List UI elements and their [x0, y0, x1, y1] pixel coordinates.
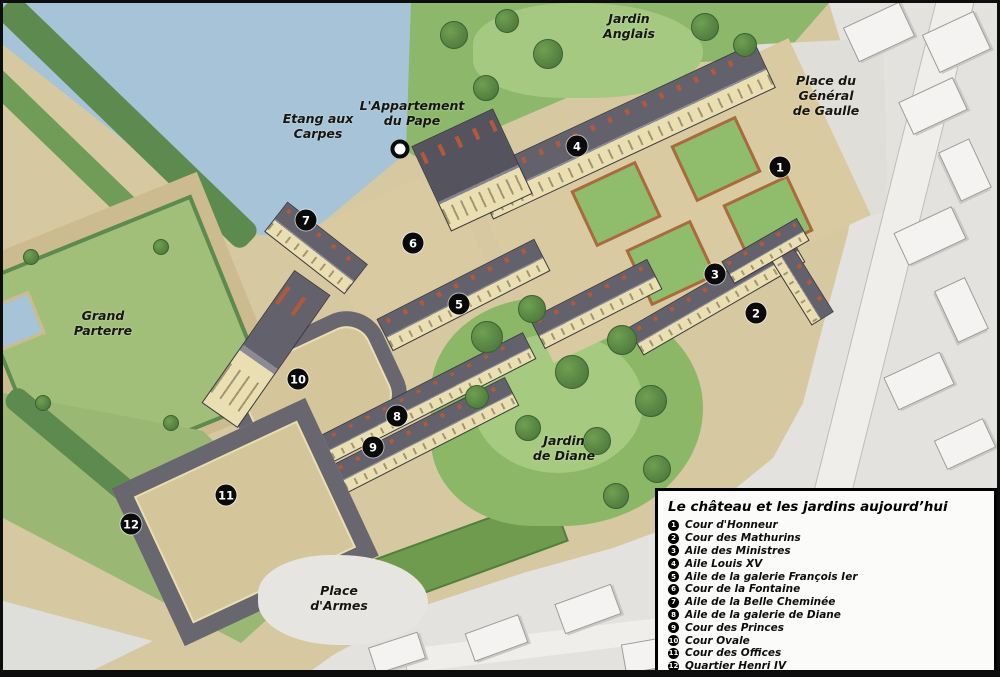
- legend-bullet-12: 12: [668, 661, 679, 672]
- legend-item-1: 1Cour d'Honneur: [668, 519, 986, 532]
- legend-item-3: 3Aile des Ministres: [668, 545, 986, 558]
- legend-label: Cour Ovale: [685, 635, 750, 647]
- legend-item-6: 6Cour de la Fontaine: [668, 583, 986, 596]
- map-marker-11: 11: [216, 485, 237, 506]
- map-marker-6: 6: [403, 233, 424, 254]
- legend-box: Le château et les jardins aujourd’hui 1C…: [655, 488, 997, 674]
- legend-bullet-6: 6: [668, 584, 679, 595]
- map-marker-3: 3: [705, 264, 726, 285]
- legend-bullet-11: 11: [668, 648, 679, 659]
- legend-bullet-8: 8: [668, 609, 679, 620]
- legend-bullet-7: 7: [668, 597, 679, 608]
- legend-bullet-2: 2: [668, 533, 679, 544]
- legend-label: Aile des Ministres: [685, 545, 791, 557]
- legend-item-7: 7Aile de la Belle Cheminée: [668, 596, 986, 609]
- map-marker-2: 2: [746, 303, 767, 324]
- legend-label: Cour de la Fontaine: [685, 583, 800, 595]
- legend-label: Aile de la Belle Cheminée: [685, 596, 835, 608]
- map-canvas: JardinAnglaisPlace duGénéralde GaulleL'A…: [0, 0, 1000, 677]
- legend-items: 1Cour d'Honneur2Cour des Mathurins3Aile …: [668, 519, 986, 673]
- legend-label: Cour des Offices: [685, 647, 781, 659]
- legend-item-5: 5Aile de la galerie François Ier: [668, 570, 986, 583]
- legend-item-10: 10Cour Ovale: [668, 634, 986, 647]
- legend-bullet-10: 10: [668, 635, 679, 646]
- legend-bullet-1: 1: [668, 520, 679, 531]
- map-marker-8: 8: [387, 406, 408, 427]
- legend-bullet-3: 3: [668, 545, 679, 556]
- legend-item-8: 8Aile de la galerie de Diane: [668, 609, 986, 622]
- map-marker-1: 1: [770, 157, 791, 178]
- map-marker-10: 10: [288, 369, 309, 390]
- legend-label: Aile de la galerie François Ier: [685, 571, 858, 583]
- legend-item-11: 11Cour des Offices: [668, 647, 986, 660]
- map-marker-5: 5: [449, 294, 470, 315]
- legend-bullet-5: 5: [668, 571, 679, 582]
- legend-label: Aile de la galerie de Diane: [685, 609, 841, 621]
- map-marker-4: 4: [567, 136, 588, 157]
- legend-item-9: 9Cour des Princes: [668, 621, 986, 634]
- legend-bullet-4: 4: [668, 558, 679, 569]
- map-marker-12: 12: [121, 514, 142, 535]
- legend-label: Aile Louis XV: [685, 558, 762, 570]
- legend-item-12: 12Quartier Henri IV: [668, 660, 986, 673]
- legend-bullet-9: 9: [668, 622, 679, 633]
- legend-label: Cour d'Honneur: [685, 519, 778, 531]
- map-marker-7: 7: [296, 210, 317, 231]
- legend-label: Cour des Mathurins: [685, 532, 801, 544]
- map-marker-9: 9: [363, 437, 384, 458]
- legend-label: Quartier Henri IV: [685, 660, 786, 672]
- legend-title: Le château et les jardins aujourd’hui: [668, 499, 986, 515]
- legend-label: Cour des Princes: [685, 622, 784, 634]
- legend-item-4: 4Aile Louis XV: [668, 557, 986, 570]
- legend-item-2: 2Cour des Mathurins: [668, 532, 986, 545]
- appartement-du-pape-dot: [391, 140, 410, 159]
